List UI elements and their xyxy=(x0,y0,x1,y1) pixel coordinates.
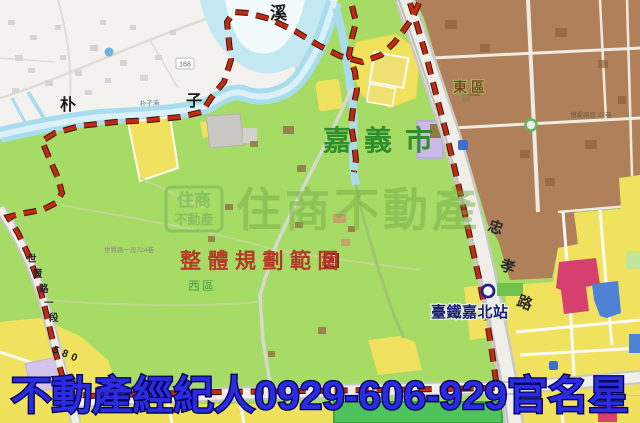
zone-lightgreen xyxy=(626,251,640,269)
east-district-label: 東區 xyxy=(453,79,489,95)
planning-scope-label: 整體規劃範圍 xyxy=(180,249,345,273)
lane-label-724: 世賢路一段724巷 xyxy=(104,245,154,254)
pond xyxy=(105,48,114,57)
shixian-char: 世 xyxy=(27,253,37,265)
river-char-xi: 溪 xyxy=(270,4,288,23)
gray-facility-block xyxy=(206,114,244,148)
city-label: 嘉義市 xyxy=(323,124,446,156)
zone-yellow-small xyxy=(315,78,343,111)
shixian-char: 賢 xyxy=(33,268,43,280)
river-char-pu: 朴 xyxy=(60,95,76,114)
poi-icon xyxy=(458,140,468,150)
boai-lane-label: 博愛路段 27巷 xyxy=(570,110,612,119)
shixian-char: 一 xyxy=(44,298,54,309)
west-district-label: 西區 xyxy=(188,279,216,293)
route-marker-label: 168 xyxy=(179,62,191,69)
station-marker-icon xyxy=(482,285,494,297)
poi-icon xyxy=(549,361,558,370)
watermark-text: 住商不動產 xyxy=(236,184,481,236)
map-screenshot: 168 住商 不動產 住商不動產 朴 子 溪 朴子溪 嘉義市 東區 整體規劃範圍… xyxy=(0,0,640,423)
watermark-logo-line2: 不動產 xyxy=(174,212,213,227)
broker-banner-text: 不動產經紀人0929-606-929官名星 xyxy=(11,374,629,418)
station-label: 臺鐵嘉北站 xyxy=(431,303,509,321)
river-char-zi: 子 xyxy=(186,92,202,110)
watermark-logo-line1: 住商 xyxy=(177,190,211,210)
map-canvas: 168 住商 不動產 住商不動產 朴 子 溪 朴子溪 嘉義市 東區 整體規劃範圍… xyxy=(0,0,640,423)
shixian-char: 路 xyxy=(39,283,49,295)
roundabout-icon xyxy=(526,120,537,131)
shixian-char: 段 xyxy=(49,312,59,324)
